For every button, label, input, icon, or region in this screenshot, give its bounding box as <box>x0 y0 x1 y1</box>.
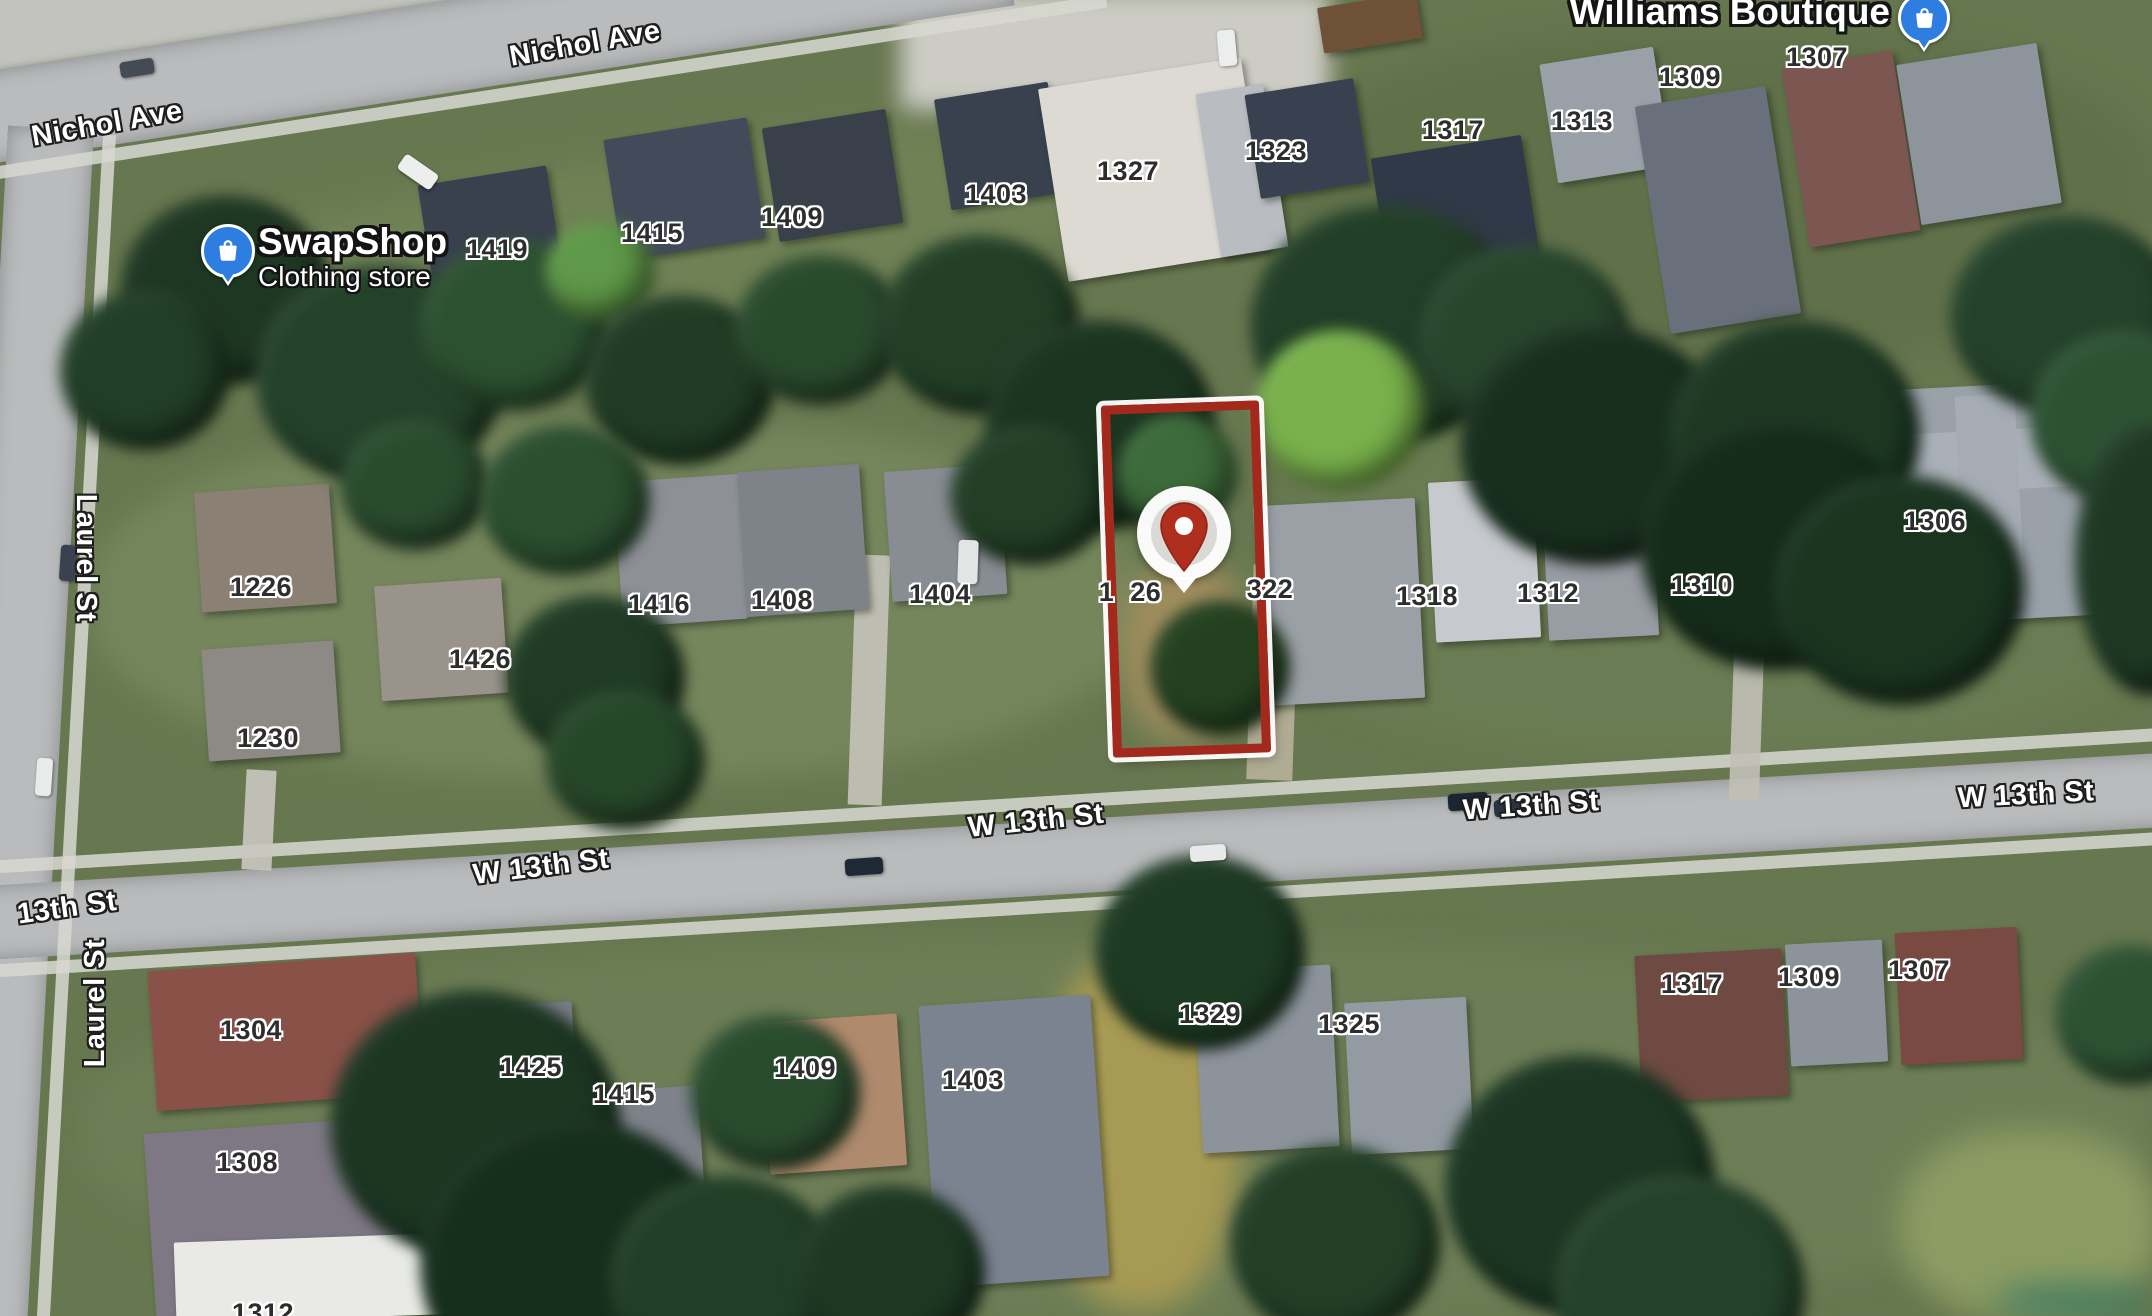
house-number-1415: 1415 <box>593 1080 655 1108</box>
house-number-1304: 1304 <box>220 1016 282 1044</box>
house-number-1310: 1310 <box>1671 571 1733 599</box>
house-number-1325: 1325 <box>1318 1010 1380 1038</box>
street-label-laurel-st: Laurel St <box>80 939 110 1068</box>
street-label-w-13th-st: W 13th St <box>471 844 610 891</box>
street-label-w-13th-st: W 13th St <box>966 799 1105 844</box>
house-number-1307: 1307 <box>1888 956 1950 984</box>
house-number-1309: 1309 <box>1778 963 1840 991</box>
house-number-322: 322 <box>1247 575 1294 603</box>
house-number-1-26: 1 26 <box>1099 578 1162 606</box>
house-number-1409: 1409 <box>774 1054 836 1082</box>
shopping-bag-pin-icon[interactable] <box>201 224 255 278</box>
street-label-nichol-ave: Nichol Ave <box>507 16 663 72</box>
house-number-1416: 1416 <box>628 590 690 618</box>
house-number-1419: 1419 <box>466 235 528 263</box>
shopping-bag-glyph <box>215 238 241 264</box>
house-number-1307: 1307 <box>1786 43 1848 71</box>
house-number-1404: 1404 <box>909 580 971 608</box>
house-number-1403: 1403 <box>965 180 1027 208</box>
street-label-w-13th-st: W 13th St <box>1462 786 1600 826</box>
house-number-1425: 1425 <box>500 1053 562 1081</box>
house-number-1323: 1323 <box>1245 137 1307 165</box>
street-label-13th-st: 13th St <box>15 886 118 930</box>
house-number-1312: 1312 <box>1517 579 1579 607</box>
house-number-1408: 1408 <box>751 586 813 614</box>
poi-name[interactable]: SwapShop <box>258 222 447 262</box>
house-number-1313: 1313 <box>1551 107 1613 135</box>
house-number-1312: 1312 <box>232 1299 294 1316</box>
house-number-1306: 1306 <box>1904 507 1966 535</box>
poi-subtitle: Clothing store <box>258 262 447 292</box>
house-number-1318: 1318 <box>1396 582 1458 610</box>
house-number-1415: 1415 <box>621 219 683 247</box>
house-number-1230: 1230 <box>237 724 299 752</box>
map-labels-layer: Nichol AveNichol AveLaurel St13th StLaur… <box>0 0 2152 1316</box>
house-number-1426: 1426 <box>449 645 511 673</box>
street-label-nichol-ave: Nichol Ave <box>29 96 185 152</box>
shopping-bag-glyph <box>1912 6 1937 31</box>
street-label-laurel-st: Laurel St <box>71 494 101 623</box>
satellite-map[interactable]: Nichol AveNichol AveLaurel St13th StLaur… <box>0 0 2152 1316</box>
house-number-1409: 1409 <box>761 203 823 231</box>
house-number-1309: 1309 <box>1659 63 1721 91</box>
house-number-1317: 1317 <box>1661 970 1723 998</box>
house-number-1329: 1329 <box>1179 1000 1241 1028</box>
house-number-1403: 1403 <box>942 1066 1004 1094</box>
house-number-1327: 1327 <box>1097 157 1159 185</box>
house-number-1226: 1226 <box>230 573 292 601</box>
poi-name[interactable]: Williams Boutique <box>1560 0 1890 32</box>
street-label-w-13th-st: W 13th St <box>1957 776 2095 814</box>
house-number-1317: 1317 <box>1422 116 1484 144</box>
house-number-1308: 1308 <box>216 1148 278 1176</box>
